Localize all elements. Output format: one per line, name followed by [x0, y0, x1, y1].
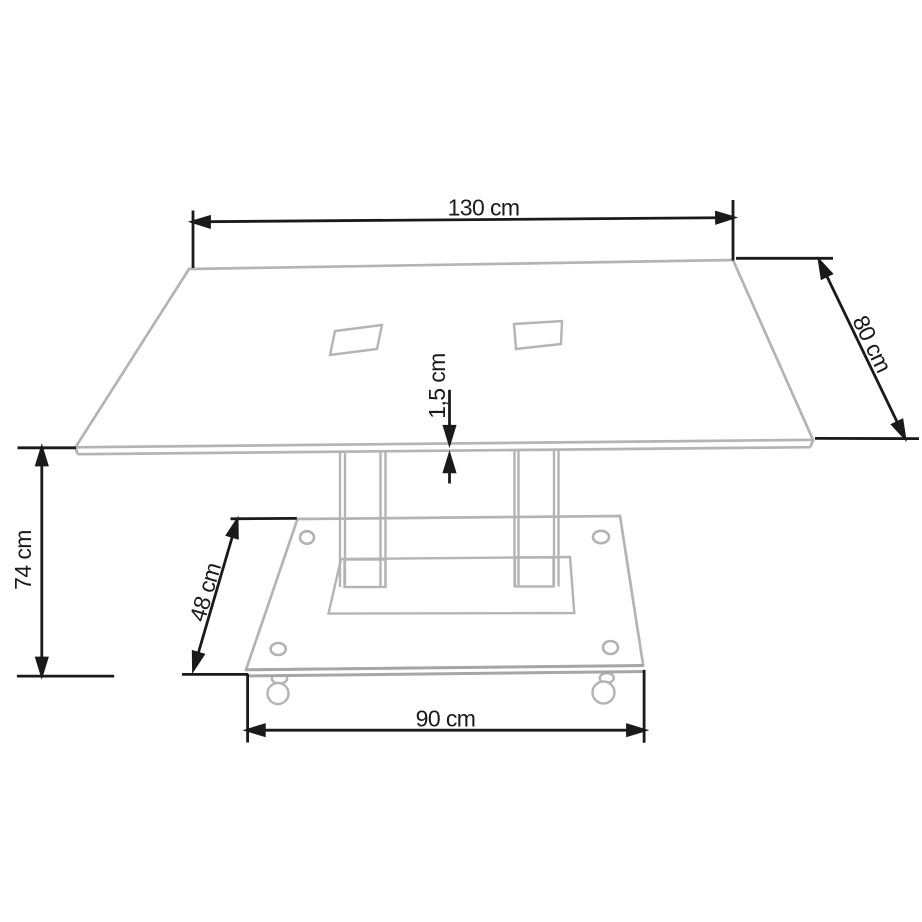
svg-text:90 cm: 90 cm [416, 705, 476, 731]
svg-text:74 cm: 74 cm [10, 530, 36, 590]
svg-text:1,5 cm: 1,5 cm [424, 353, 450, 418]
svg-text:130 cm: 130 cm [448, 194, 520, 220]
